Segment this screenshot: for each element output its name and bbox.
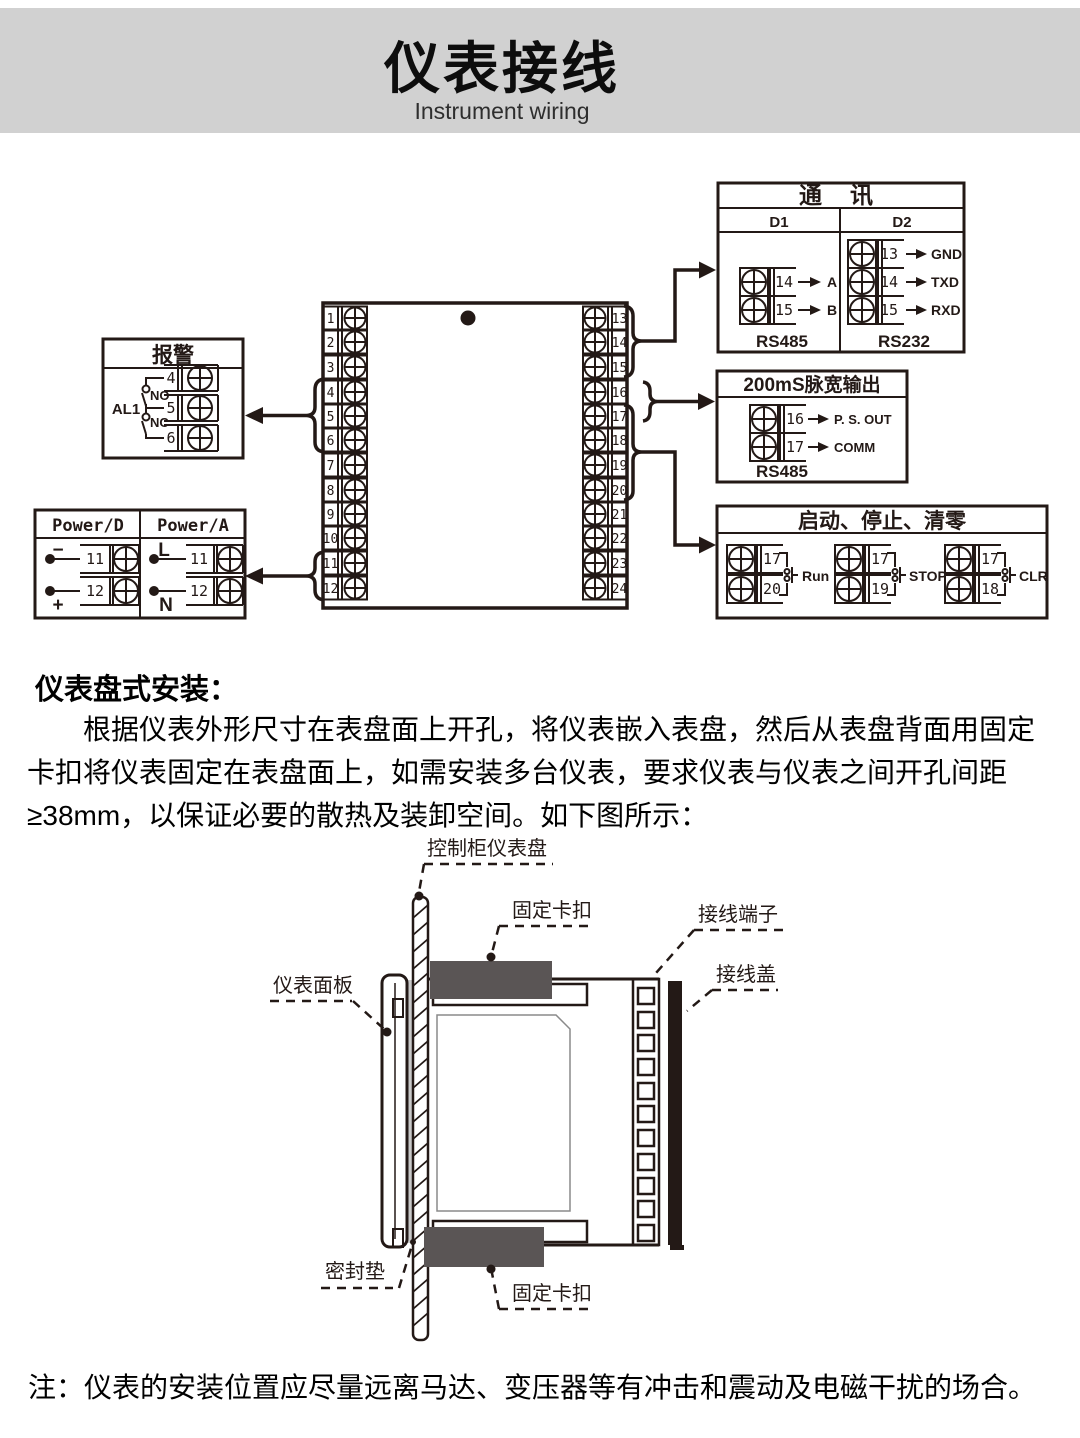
comm-d2-rows: 13 GND 14 TXD 15 RXD: [848, 240, 962, 324]
install-paragraph: 根据仪表外形尺寸在表盘面上开孔，将仪表嵌入表盘，然后从表盘背面用固定卡扣将仪表固…: [27, 708, 1057, 837]
power-sign: −: [52, 540, 63, 561]
power-box: Power/D Power/A 11 − 12 + 11 L 12 N: [35, 510, 245, 618]
mounting-diagram: 控制柜仪表盘 固定卡扣 接线端子 接线盖 仪表面板 密封垫 固定卡扣: [0, 830, 1080, 1360]
connectors: [245, 262, 716, 601]
alarm-box: 报警 4 5 6 NO NC AL1: [103, 339, 243, 458]
gasket-label: 密封垫: [325, 1260, 385, 1283]
power-terminal: 12: [86, 582, 104, 600]
control-action-label: CLR: [1019, 568, 1048, 584]
arrow-to-power: [245, 568, 263, 585]
body-outline: [437, 1015, 570, 1211]
arrow-to-control: [699, 537, 716, 554]
terminal-number: 4: [327, 386, 335, 401]
terminal-number: 5: [327, 410, 335, 425]
terminal-number: 19: [612, 459, 628, 474]
central-terminal-block: 1 2 3 4 5 6 7 8 9 10 11 12 13 14 15 16 1…: [323, 303, 628, 608]
power-a-rows: 11 L 12 N: [150, 540, 243, 616]
clip-bottom-label: 固定卡扣: [512, 1282, 592, 1305]
control-group-stop: 17 19 STOP: [835, 545, 947, 603]
pulse-signal: P. S. OUT: [834, 412, 892, 427]
terminal-number: 2: [327, 336, 335, 351]
pulse-terminal: 16: [786, 410, 804, 428]
terminal-number: 18: [612, 434, 628, 449]
fixing-clip-bottom: [424, 1227, 544, 1267]
control-title: 启动、停止、清零: [798, 509, 967, 533]
comm-signal: B: [827, 302, 837, 318]
instrument-faceplate: [382, 975, 407, 1247]
terminal-number: 23: [612, 557, 628, 572]
control-terminal: 17: [871, 550, 889, 568]
comm-signal: A: [827, 274, 837, 290]
power-sign: L: [158, 540, 170, 561]
terminal-strip-label: 接线端子: [698, 903, 778, 926]
page-title: 仪表接线: [0, 24, 1004, 105]
comm-signal: TXD: [931, 274, 959, 290]
terminal-number: 20: [612, 484, 628, 499]
comm-d1-rows: 14 A 15 B: [740, 268, 837, 324]
no-contact-label: NO: [150, 388, 170, 403]
wiring-cover-foot: [670, 1245, 684, 1250]
clip-top-label: 固定卡扣: [512, 899, 592, 922]
power-sign: +: [52, 595, 63, 616]
bracket-pulse: [643, 382, 657, 421]
control-box: 启动、停止、清零 17 20 Run 17 19 STOP: [717, 506, 1048, 618]
terminal-number: 17: [612, 410, 628, 425]
control-terminal: 19: [871, 580, 889, 598]
terminal-number: 12: [323, 582, 339, 597]
control-group-clr: 17 18 CLR: [945, 545, 1048, 603]
comm-terminal: 15: [880, 301, 898, 319]
comm-terminal: 14: [880, 273, 898, 291]
comm-signal: GND: [931, 246, 962, 262]
power-d-title: Power/D: [52, 516, 124, 536]
alarm-group-label: AL1: [112, 401, 140, 418]
power-terminal: 11: [86, 550, 104, 568]
control-action-label: Run: [802, 568, 829, 584]
comm-title: 通讯: [799, 182, 901, 208]
terminal-number: 10: [323, 532, 339, 547]
comm-terminal: 14: [775, 273, 793, 291]
terminal-number: 22: [612, 532, 628, 547]
comm-signal: RXD: [931, 302, 961, 318]
comm-terminal: 15: [775, 301, 793, 319]
terminal-number: 3: [327, 361, 335, 376]
terminal-number: 6: [327, 434, 335, 449]
terminal-number: 7: [327, 459, 335, 474]
terminal-number: 11: [323, 557, 339, 572]
terminal-number: 15: [612, 361, 628, 376]
power-terminal: 11: [190, 550, 208, 568]
power-terminal: 12: [190, 582, 208, 600]
control-terminal: 17: [981, 550, 999, 568]
page-subtitle: Instrument wiring: [0, 98, 1004, 125]
cabinet-panel: [413, 897, 428, 1340]
header-band: 仪表接线 Instrument wiring: [0, 8, 1080, 133]
control-terminal: 17: [763, 550, 781, 568]
alarm-terminal: 4: [166, 369, 175, 387]
power-a-title: Power/A: [157, 516, 229, 536]
terminal-number: 21: [612, 508, 628, 523]
wiring-diagram: 1 2 3 4 5 6 7 8 9 10 11 12 13 14 15 16 1…: [0, 160, 1080, 660]
comm-d2-label: D2: [892, 214, 911, 231]
pulse-box: 200mS脉宽输出 16 P. S. OUT 17 COMM RS485: [717, 371, 907, 482]
terminal-number: 16: [612, 386, 628, 401]
faceplate-label: 仪表面板: [273, 974, 353, 997]
terminal-number: 14: [612, 336, 628, 351]
pulse-title: 200mS脉宽输出: [743, 373, 880, 396]
comm-box: 通讯 D1 D2 14 A 15 B 13 GND 14 TX: [718, 182, 964, 352]
panel-label: 控制柜仪表盘: [427, 837, 547, 860]
fixing-clip-top: [430, 961, 552, 999]
power-d-rows: 11 − 12 +: [46, 540, 139, 616]
page: 仪表接线 Instrument wiring 1 2 3 4 5 6: [0, 0, 1080, 1438]
control-action-label: STOP: [909, 568, 947, 584]
pulse-signal: COMM: [834, 440, 875, 455]
arrow-to-comm: [699, 262, 716, 279]
terminal-number: 9: [327, 508, 335, 523]
instrument-body: [428, 979, 659, 1245]
nc-contact-label: NC: [150, 415, 169, 430]
alarm-terminal: 6: [166, 429, 175, 447]
right-terminals: 13 14 15 16 17 18 19 20 21 22 23 24: [583, 307, 627, 600]
pulse-bus: RS485: [756, 462, 808, 481]
control-group-run: 17 20 Run: [727, 545, 829, 603]
orientation-dot: [461, 311, 476, 326]
terminal-number: 13: [612, 312, 628, 327]
left-terminals: 1 2 3 4 5 6 7 8 9 10 11 12: [323, 307, 367, 600]
install-heading: 仪表盘式安装：: [35, 666, 238, 708]
terminal-number: 1: [327, 312, 335, 327]
cover-label: 接线盖: [716, 963, 776, 986]
arrow-to-alarm: [245, 407, 263, 424]
leader-dots: [383, 892, 496, 1274]
wiring-cover: [668, 981, 682, 1245]
comm-terminal: 13: [880, 245, 898, 263]
alarm-title: 报警: [152, 343, 194, 367]
arrow-to-pulse: [698, 393, 715, 410]
comm-d1-label: D1: [769, 214, 788, 231]
terminal-number: 24: [612, 582, 628, 597]
terminal-strip: [633, 979, 659, 1245]
control-terminal: 18: [981, 580, 999, 598]
terminal-number: 8: [327, 484, 335, 499]
comm-d2-bus: RS232: [878, 332, 930, 351]
control-terminal: 20: [763, 580, 781, 598]
pulse-terminal: 17: [786, 438, 804, 456]
note-text: 注：仪表的安装位置应尽量远离马达、变压器等有冲击和震动及电磁干扰的场合。: [28, 1366, 1068, 1406]
power-sign: N: [159, 595, 173, 616]
comm-d1-bus: RS485: [756, 332, 808, 351]
